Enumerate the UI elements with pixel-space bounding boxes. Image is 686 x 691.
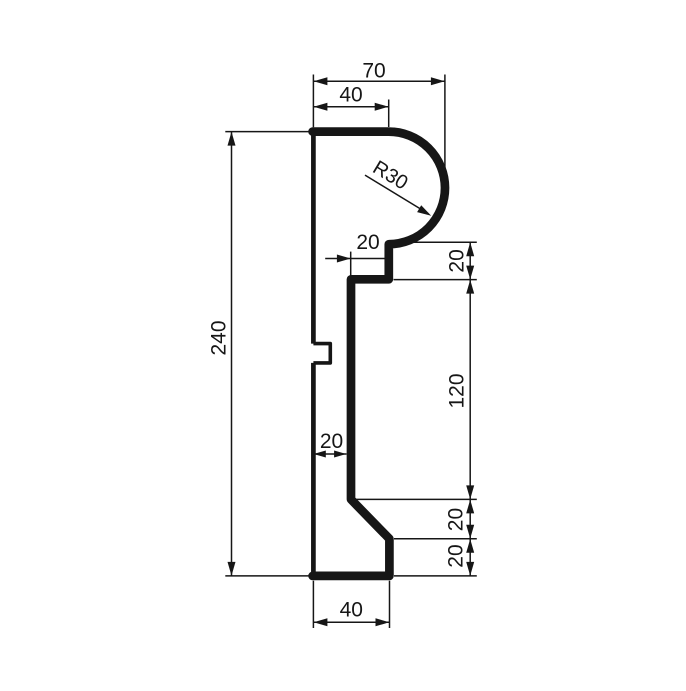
svg-text:120: 120 (445, 373, 468, 408)
svg-text:20: 20 (356, 231, 379, 254)
svg-text:20: 20 (445, 249, 468, 272)
svg-text:20: 20 (320, 430, 343, 453)
svg-text:70: 70 (362, 60, 385, 83)
svg-text:40: 40 (340, 599, 363, 622)
svg-text:240: 240 (208, 320, 231, 355)
svg-text:40: 40 (339, 84, 362, 107)
svg-text:20: 20 (445, 508, 468, 531)
svg-text:20: 20 (445, 544, 468, 567)
